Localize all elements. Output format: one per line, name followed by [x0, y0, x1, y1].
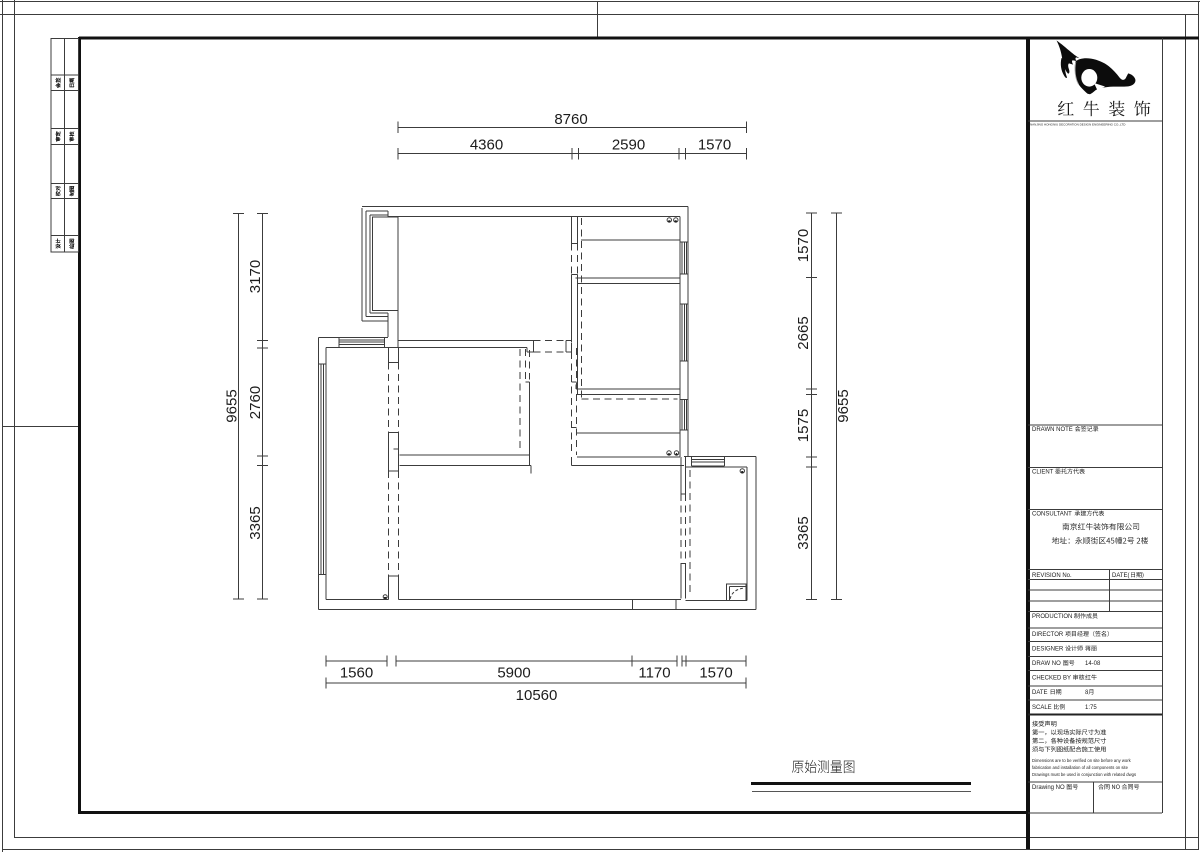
- svg-text:14-08: 14-08: [1085, 661, 1101, 667]
- svg-text:DESIGNER: DESIGNER: [1032, 647, 1064, 653]
- svg-text:fabrication and installation o: fabrication and installation of all comp…: [1032, 765, 1129, 770]
- svg-text:3365: 3365: [795, 516, 812, 549]
- svg-text:5900: 5900: [497, 665, 530, 682]
- svg-text:1:75: 1:75: [1085, 705, 1097, 711]
- svg-text:10560: 10560: [516, 687, 558, 704]
- svg-text:3365: 3365: [247, 506, 264, 539]
- svg-text:SCALE: SCALE: [1032, 705, 1052, 711]
- svg-text:1570: 1570: [698, 137, 731, 154]
- svg-text:DRAWN NOTE: DRAWN NOTE: [1032, 427, 1073, 433]
- svg-text:CLIENT: CLIENT: [1032, 470, 1054, 476]
- svg-text:1570: 1570: [699, 665, 732, 682]
- svg-text:1560: 1560: [340, 665, 373, 682]
- svg-text:DATE: DATE: [1032, 690, 1048, 696]
- svg-text:8760: 8760: [554, 111, 587, 128]
- svg-text:2590: 2590: [612, 137, 645, 154]
- svg-text:PRODUCTION: PRODUCTION: [1032, 614, 1072, 620]
- svg-text:CONSULTANT: CONSULTANT: [1032, 512, 1072, 518]
- svg-text:3170: 3170: [247, 260, 264, 293]
- svg-text:2665: 2665: [795, 316, 812, 349]
- svg-text:1570: 1570: [795, 229, 812, 262]
- svg-text:Drawing NO: Drawing NO: [1032, 785, 1065, 791]
- svg-text:REVISION No.: REVISION No.: [1032, 573, 1072, 579]
- svg-text:DATE(: DATE(: [1112, 573, 1130, 579]
- svg-text:Drawings must be used in conju: Drawings must be used in conjunction wit…: [1032, 772, 1136, 777]
- svg-text:Dimensions are to be verified: Dimensions are to be verified on site be…: [1032, 758, 1132, 763]
- svg-text:2760: 2760: [247, 386, 264, 419]
- svg-text:9655: 9655: [224, 389, 241, 422]
- svg-text:4360: 4360: [470, 137, 503, 154]
- svg-text:9655: 9655: [835, 389, 852, 422]
- svg-text:DRAW NO: DRAW NO: [1032, 661, 1061, 667]
- svg-text:1575: 1575: [795, 409, 812, 442]
- svg-text:1170: 1170: [638, 665, 670, 682]
- svg-text:DIRECTOR: DIRECTOR: [1032, 632, 1064, 638]
- svg-text:CHECKED BY: CHECKED BY: [1032, 676, 1071, 682]
- svg-text:NANJING HONGNIU DECORATION DES: NANJING HONGNIU DECORATION DESIGN ENGINE…: [1030, 123, 1126, 127]
